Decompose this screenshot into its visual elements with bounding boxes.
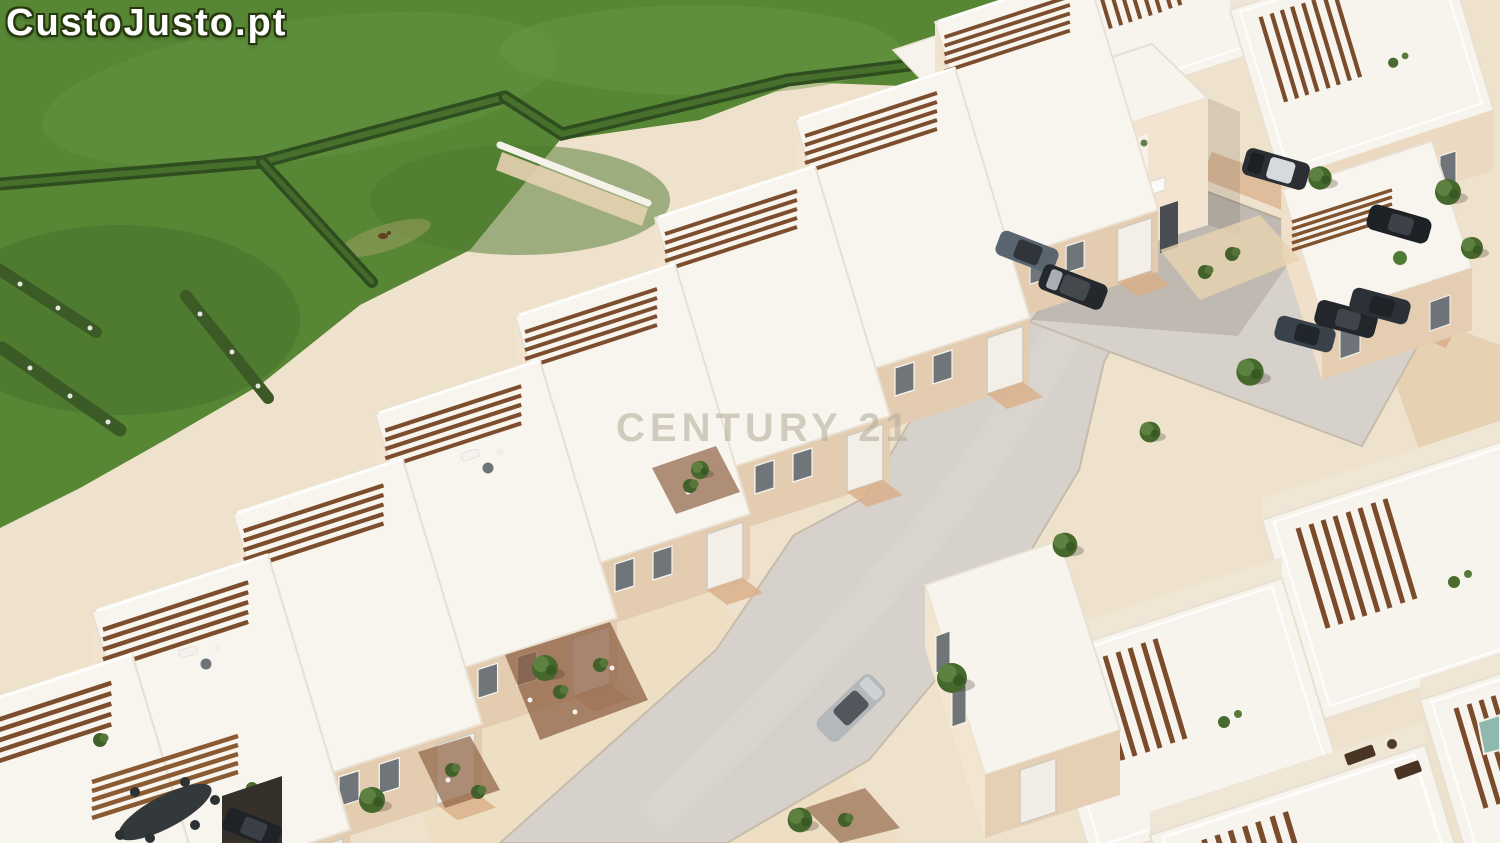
building-shadow (1208, 98, 1240, 235)
screenshot-root: CustoJusto.pt CENTURY 21 (0, 0, 1500, 843)
palm-plant (1393, 251, 1407, 265)
custojusto-watermark: CustoJusto.pt (6, 2, 287, 45)
century21-watermark: CENTURY 21 (616, 406, 913, 451)
mown-grass-highlight (500, 5, 900, 95)
garage-door (1020, 758, 1056, 824)
